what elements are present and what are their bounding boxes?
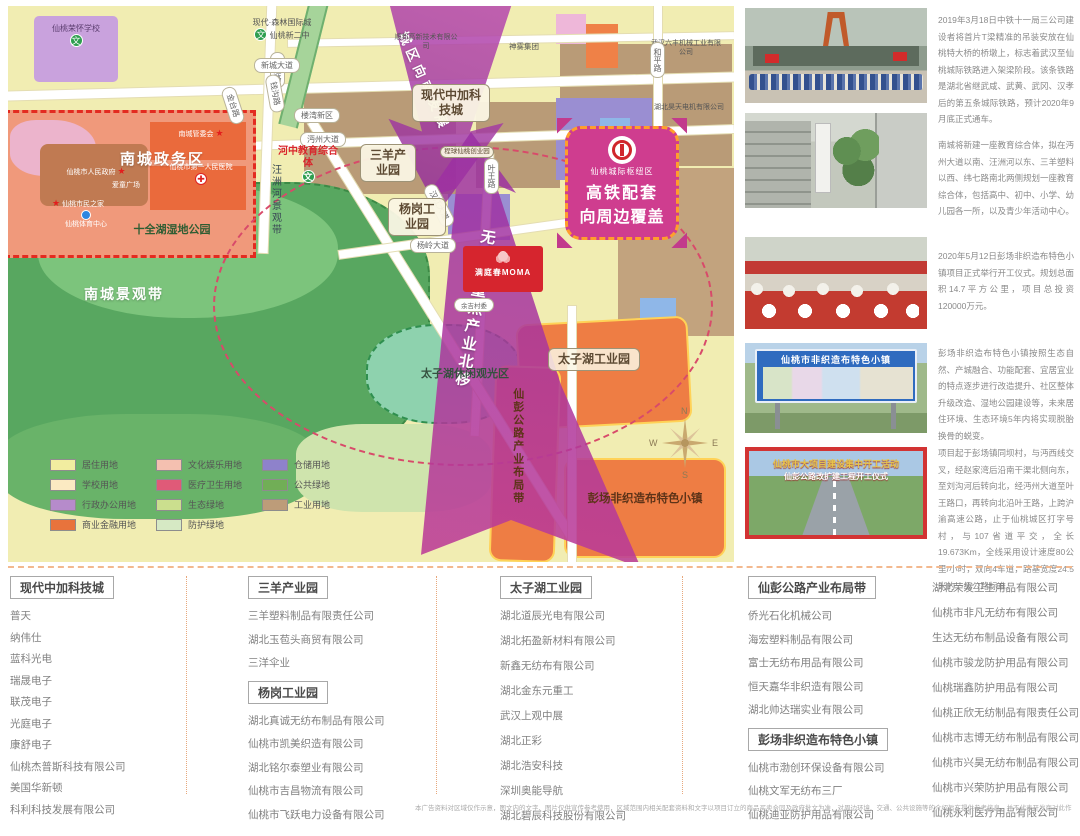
photo-rail-construction bbox=[745, 8, 927, 103]
company-item: 仙桃市凯美织造有限公司 bbox=[248, 736, 385, 751]
legend-swatch bbox=[262, 479, 288, 491]
legend-col3: 仓储用地 公共绿地 工业用地 bbox=[262, 458, 330, 531]
legend-swatch bbox=[50, 459, 76, 471]
bottom-col-taizihu: 太子湖工业园 湖北道辰光电有限公司 湖北拓盈新材料有限公司 新鑫无纺布有限公司 … bbox=[500, 576, 626, 833]
label-pengchang-town: 彭场非织造布特色小镇 bbox=[580, 492, 710, 506]
moma-label: 满庭春MOMA bbox=[463, 267, 543, 278]
hospital-icon: ✚ bbox=[195, 173, 207, 185]
company-item: 湖北玉苞头商贸有限公司 bbox=[248, 632, 385, 647]
company-item: 湖北道辰光电有限公司 bbox=[500, 608, 626, 623]
label-taizihu-leisure: 太子湖休闲观光区 bbox=[400, 368, 530, 382]
label-yanggang-park: 杨岗工业园 bbox=[388, 198, 446, 236]
col4-header2: 彭场非织造布特色小镇 bbox=[748, 728, 888, 751]
company-item: 仙桃市飞跃电力设备有限公司 bbox=[248, 807, 385, 822]
col5-items: 湖北荣发卫生用品有限公司 仙桃市非凡无纺布有限公司 生达无纺布制品设备有限公司 … bbox=[932, 580, 1079, 820]
label-yangling-ave: 杨岭大道 bbox=[410, 238, 456, 253]
banner-line2: 仙彭公路改扩建工程开工仪式 bbox=[749, 471, 923, 482]
legend-item: 公共绿地 bbox=[262, 478, 330, 491]
legend-swatch bbox=[50, 499, 76, 511]
company-item: 联茂电子 bbox=[10, 694, 126, 709]
photo-highway-banner: 仙桃市大项目建设集中开工活动 仙彭公路改扩建工程开工仪式 bbox=[745, 447, 927, 539]
legend-swatch bbox=[156, 459, 182, 471]
poster: 城区向南发展 无纺布重点产业北移 仙桃城际枢纽区 高铁配套 向周边覆盖 仙桃荣怀… bbox=[0, 0, 1080, 836]
legend-col2: 文化娱乐用地 医疗卫生用地 生态绿地 防护绿地 bbox=[156, 458, 242, 531]
company-item: 康舒电子 bbox=[10, 737, 126, 752]
company-item: 仙桃市兴荣防护用品有限公司 bbox=[932, 780, 1079, 795]
legend-swatch bbox=[262, 499, 288, 511]
legend-item: 工业用地 bbox=[262, 498, 330, 511]
bottom-col-xianpeng-pengchang: 仙彭公路产业布局带 侨光石化机械公司 海宏塑料制品有限公司 富士无纺布用品有限公… bbox=[748, 576, 888, 830]
legend-label: 学校用地 bbox=[82, 478, 118, 491]
company-item: 纳伟仕 bbox=[10, 630, 126, 645]
legend-item: 居住用地 bbox=[50, 458, 136, 471]
col3-items: 湖北道辰光电有限公司 湖北拓盈新材料有限公司 新鑫无纺布有限公司 湖北金东元重工… bbox=[500, 608, 626, 823]
label-modern-forest: 现代·森林国际城 文 仙桃新二中 bbox=[236, 18, 328, 41]
company-item: 三羊塑料制品有限责任公司 bbox=[248, 608, 385, 623]
rail-hub: 仙桃城际枢纽区 高铁配套 向周边覆盖 bbox=[565, 126, 679, 240]
label-mianzhou-ave: 沔州大道 bbox=[300, 132, 346, 147]
zone-orange-top bbox=[586, 24, 618, 68]
caption-1: 2019年3月18日中铁十一局三公司建设者将首片T梁精准的吊装安放在仙桃特大桥的… bbox=[938, 12, 1074, 128]
legend-swatch bbox=[156, 479, 182, 491]
hub-line1: 高铁配套 bbox=[568, 179, 676, 203]
school-icon: 文 bbox=[302, 170, 315, 183]
company-item: 恒天嘉华非织造有限公司 bbox=[748, 679, 888, 694]
col2-header2: 杨岗工业园 bbox=[248, 681, 328, 704]
legend-swatch bbox=[50, 519, 76, 531]
company-item: 湖北浩安科技 bbox=[500, 758, 626, 773]
company-item: 光庭电子 bbox=[10, 716, 126, 731]
label-yewang-rd: 叶王路 bbox=[484, 158, 499, 194]
legend-label: 行政办公用地 bbox=[82, 498, 136, 511]
legend-label: 居住用地 bbox=[82, 458, 118, 471]
label-chengqiu-park: 程球仙桃创业园 bbox=[440, 146, 494, 158]
label-citizen-home: ★ 仙桃市民之家 bbox=[30, 198, 126, 210]
school-icon: 文 bbox=[70, 34, 83, 47]
col2-header1: 三羊产业园 bbox=[248, 576, 328, 599]
col3-header: 太子湖工业园 bbox=[500, 576, 592, 599]
company-item: 海宏塑料制品有限公司 bbox=[748, 632, 888, 647]
label-xincheng-ave: 新城大道 bbox=[254, 58, 300, 73]
company-item: 仙桃市兴昊无纺布制品有限公司 bbox=[932, 755, 1079, 770]
company-item: 武汉上观中展 bbox=[500, 708, 626, 723]
company-item: 仙桃瑞鑫防护用品有限公司 bbox=[932, 680, 1079, 695]
legend-col1: 居住用地 学校用地 行政办公用地 商业金融用地 bbox=[50, 458, 136, 531]
company-item: 湖北铭尔泰塑业有限公司 bbox=[248, 760, 385, 775]
label-hezhong-edu: 河中教育综合体 文 bbox=[274, 146, 342, 184]
legend-item: 学校用地 bbox=[50, 478, 136, 491]
caption-2: 南城将新建一座教育综合体，拟在沔州大道以南、汪洲河以东、三羊塑料以西、纬七路南北… bbox=[938, 137, 1074, 220]
company-item: 科利科技发展有限公司 bbox=[10, 802, 126, 817]
compass-w: W bbox=[649, 438, 658, 448]
label-ronghuai-school: 仙桃荣怀学校 文 bbox=[42, 24, 110, 47]
company-item: 仙桃正欣无纺制品有限责任公司 bbox=[932, 705, 1079, 720]
billboard-title: 仙桃市非织造布特色小镇 bbox=[757, 353, 915, 366]
caption-3: 2020年5月12日彭场非织造布特色小镇项目正式举行开工仪式。规划总面积14.7… bbox=[938, 248, 1074, 314]
label-shiquan-park: 十全湖湿地公园 bbox=[112, 224, 232, 238]
column-divider-2 bbox=[436, 576, 437, 794]
bottom-col-sanyang-yanggang: 三羊产业园 三羊塑料制品有限责任公司 湖北玉苞头商贸有限公司 三洋伞业 杨岗工业… bbox=[248, 576, 385, 830]
legend-label: 文化娱乐用地 bbox=[188, 458, 242, 471]
legend-label: 工业用地 bbox=[294, 498, 330, 511]
label-nancheng-committee: 南城管委会 ★ bbox=[156, 128, 246, 140]
company-item: 生达无纺布制品设备有限公司 bbox=[932, 630, 1079, 645]
company-item: 蓝科光电 bbox=[10, 651, 126, 666]
label-nancheng-admin: 南城政务区 bbox=[120, 148, 205, 169]
col1-header: 现代中加科技城 bbox=[10, 576, 114, 599]
legend-item: 商业金融用地 bbox=[50, 518, 136, 531]
label-shenwu: 神雾集团 bbox=[496, 42, 552, 51]
dashed-separator bbox=[8, 566, 1072, 568]
photo-billboard: 仙桃市非织造布特色小镇 bbox=[745, 343, 927, 433]
legend-swatch bbox=[50, 479, 76, 491]
company-item: 富士无纺布用品有限公司 bbox=[748, 655, 888, 670]
col1-items: 普天 纳伟仕 蓝科光电 瑞晟电子 联茂电子 光庭电子 康舒电子 仙桃杰普斯科技有… bbox=[10, 608, 126, 817]
company-item: 仙桃市非凡无纺布有限公司 bbox=[932, 605, 1079, 620]
company-item: 湖北正彩 bbox=[500, 733, 626, 748]
legend-item: 防护绿地 bbox=[156, 518, 242, 531]
company-item: 仙桃文军无纺布三厂 bbox=[748, 783, 888, 798]
company-item: 仙桃杰普斯科技有限公司 bbox=[10, 759, 126, 774]
caption-5: 项目起于彭场镇同坝村，与沔西线交叉，经赵家湾后沿南干渠北侧向东，至刘沟河后转向北… bbox=[938, 445, 1074, 594]
company-item: 深圳奥能导航 bbox=[500, 783, 626, 798]
caption-4: 彭场非织造布特色小镇按照生态自然、产城融合、功能配套、宜居宜业的特点逐步进行改造… bbox=[938, 345, 1074, 444]
label-heping-rd: 和平路 bbox=[650, 42, 665, 78]
company-item: 美国华新顿 bbox=[10, 780, 126, 795]
bottom-col-zhongjia: 现代中加科技城 普天 纳伟仕 蓝科光电 瑞晟电子 联茂电子 光庭电子 康舒电子 … bbox=[10, 576, 126, 823]
column-divider-3 bbox=[682, 576, 683, 794]
banner-line1: 仙桃市大项目建设集中开工活动 bbox=[749, 457, 923, 470]
legend-label: 医疗卫生用地 bbox=[188, 478, 242, 491]
company-item: 瑞晟电子 bbox=[10, 673, 126, 688]
label-taizihu-industrial: 太子湖工业园 bbox=[548, 348, 640, 371]
company-item: 湖北荣发卫生用品有限公司 bbox=[932, 580, 1079, 595]
label-nancheng-belt: 南城景观带 bbox=[84, 284, 164, 304]
company-item: 湖北拓盈新材料有限公司 bbox=[500, 633, 626, 648]
label-yuji: 余吉村委 bbox=[454, 298, 494, 312]
label-shunbang: 顺邦高新技术有限公司 bbox=[394, 34, 458, 52]
legend-item: 行政办公用地 bbox=[50, 498, 136, 511]
legend-item: 仓储用地 bbox=[262, 458, 330, 471]
school-icon: 文 bbox=[254, 28, 267, 41]
company-item: 侨光石化机械公司 bbox=[748, 608, 888, 623]
label-zhongjia-city: 现代中加科技城 bbox=[412, 84, 490, 122]
moma-block: 满庭春MOMA bbox=[463, 246, 543, 292]
photo-school-building bbox=[745, 113, 927, 208]
label-aitong-plaza: 爱童广场 bbox=[100, 182, 152, 191]
hub-tag: 仙桃城际枢纽区 bbox=[568, 166, 676, 177]
legend-swatch bbox=[156, 519, 182, 531]
legend-item: 医疗卫生用地 bbox=[156, 478, 242, 491]
legend-swatch bbox=[156, 499, 182, 511]
legend-label: 防护绿地 bbox=[188, 518, 224, 531]
bottom-col-more: 湖北荣发卫生用品有限公司 仙桃市非凡无纺布有限公司 生达无纺布制品设备有限公司 … bbox=[932, 580, 1079, 830]
legend-label: 生态绿地 bbox=[188, 498, 224, 511]
col2-items2: 湖北真诚无纺布制品有限公司 仙桃市凯美织造有限公司 湖北铭尔泰塑业有限公司 仙桃… bbox=[248, 713, 385, 822]
compass-e: E bbox=[712, 438, 718, 448]
legal-disclaimer: 本广告资料对区域仅作示意，图文内的文字、图片仅供宣传参考使用，区域范围内相关配套… bbox=[415, 802, 1072, 812]
col4-items2: 仙桃市渤创环保设备有限公司 仙桃文军无纺布三厂 仙桃迪亚防护用品有限公司 bbox=[748, 760, 888, 822]
legend-label: 商业金融用地 bbox=[82, 518, 136, 531]
company-item: 湖北金东元重工 bbox=[500, 683, 626, 698]
legend-item: 文化娱乐用地 bbox=[156, 458, 242, 471]
company-item: 三洋伞业 bbox=[248, 655, 385, 670]
map-legend: 居住用地 学校用地 行政办公用地 商业金融用地 bbox=[50, 458, 330, 531]
planning-map: 城区向南发展 无纺布重点产业北移 仙桃城际枢纽区 高铁配套 向周边覆盖 仙桃荣怀… bbox=[8, 6, 734, 562]
company-item: 仙桃市骏龙防护用品有限公司 bbox=[932, 655, 1079, 670]
column-divider-1 bbox=[186, 576, 187, 794]
sports-icon bbox=[81, 210, 91, 220]
company-item: 仙桃市志博无纺布制品有限公司 bbox=[932, 730, 1079, 745]
star-icon: ★ bbox=[215, 128, 223, 138]
label-louwan: 楼湾新区 bbox=[294, 108, 340, 123]
compass-star-icon bbox=[656, 410, 714, 476]
company-item: 湖北帅达瑞实业有限公司 bbox=[748, 702, 888, 717]
legend-label: 仓储用地 bbox=[294, 458, 330, 471]
company-item: 仙桃市渤创环保设备有限公司 bbox=[748, 760, 888, 775]
col4-header1: 仙彭公路产业布局带 bbox=[748, 576, 876, 599]
compass-s: S bbox=[682, 470, 688, 480]
col4-items1: 侨光石化机械公司 海宏塑料制品有限公司 富士无纺布用品有限公司 恒天嘉华非织造有… bbox=[748, 608, 888, 717]
label-haotian: 湖北昊天电机有限公司 bbox=[654, 104, 724, 113]
label-xianpeng-belt: 仙彭公路产业布局带 bbox=[510, 388, 524, 505]
hub-line2: 向周边覆盖 bbox=[568, 203, 676, 227]
compass-n: N bbox=[681, 406, 688, 416]
legend-item: 生态绿地 bbox=[156, 498, 242, 511]
label-sanyang-park: 三羊产业园 bbox=[360, 144, 416, 182]
company-item: 普天 bbox=[10, 608, 126, 623]
company-item: 仙桃市吉昌物流有限公司 bbox=[248, 783, 385, 798]
col2-items1: 三羊塑料制品有限责任公司 湖北玉苞头商贸有限公司 三洋伞业 bbox=[248, 608, 385, 670]
legend-label: 公共绿地 bbox=[294, 478, 330, 491]
compass-rose: N W E S bbox=[656, 410, 714, 476]
photo-groundbreaking bbox=[745, 237, 927, 329]
moma-tree-icon bbox=[495, 250, 511, 266]
legend-swatch bbox=[262, 459, 288, 471]
star-icon: ★ bbox=[52, 198, 60, 208]
company-item: 新鑫无纺布有限公司 bbox=[500, 658, 626, 673]
company-item: 湖北真诚无纺布制品有限公司 bbox=[248, 713, 385, 728]
china-railway-icon bbox=[608, 136, 636, 164]
